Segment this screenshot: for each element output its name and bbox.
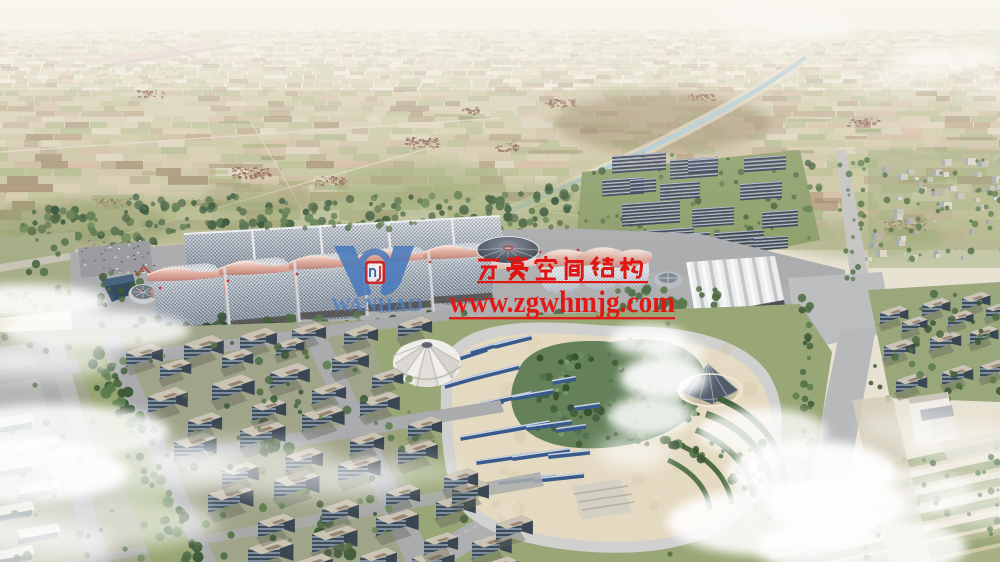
- svg-text:www.zgwhmjg.com: www.zgwhmjg.com: [449, 284, 675, 319]
- svg-text:WANHAO: WANHAO: [331, 295, 423, 316]
